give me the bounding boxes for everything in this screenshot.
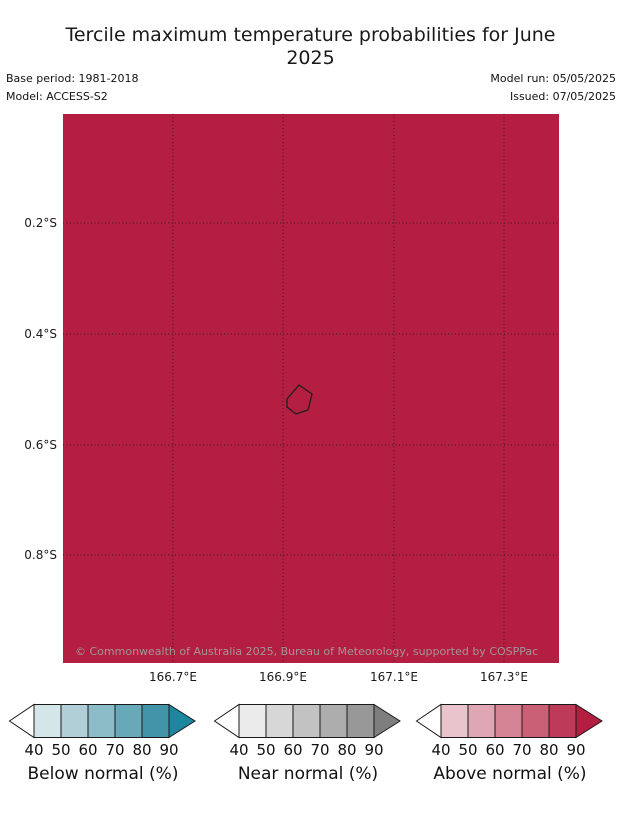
- over-arrow: [169, 705, 195, 738]
- tick-90: 90: [154, 741, 184, 759]
- colorbar-above-normal-bar: [415, 703, 605, 739]
- tick-90: 90: [561, 741, 591, 759]
- x-tick-label: 166.7°E: [149, 670, 197, 684]
- issued-text: Issued: 07/05/2025: [490, 88, 616, 106]
- segment-80-90: [347, 705, 374, 738]
- tick-50: 50: [453, 741, 483, 759]
- tick-70: 70: [507, 741, 537, 759]
- segment-50-60: [61, 705, 88, 738]
- tick-60: 60: [480, 741, 510, 759]
- model-text: Model: ACCESS-S2: [6, 88, 138, 106]
- segment-60-70: [495, 705, 522, 738]
- copyright-text: © Commonwealth of Australia 2025, Bureau…: [75, 645, 538, 658]
- segment-70-80: [115, 705, 142, 738]
- segment-70-80: [522, 705, 549, 738]
- over-arrow: [374, 705, 400, 738]
- y-tick-label: 0.4°S: [0, 327, 57, 341]
- colorbar-below-normal-bar: [8, 703, 198, 739]
- under-arrow: [417, 705, 442, 738]
- segment-50-60: [266, 705, 293, 738]
- colorbar-label: Below normal (%): [8, 764, 198, 784]
- colorbar-near-normal-bar: [213, 703, 403, 739]
- segment-40-50: [441, 705, 468, 738]
- segment-80-90: [549, 705, 576, 738]
- segment-60-70: [88, 705, 115, 738]
- colorbar-label: Near normal (%): [213, 764, 403, 784]
- colorbar-above-normal: 40 50 60 70 80 90 Above normal (%): [415, 703, 605, 784]
- under-arrow: [10, 705, 35, 738]
- meta-left: Base period: 1981-2018 Model: ACCESS-S2: [6, 70, 138, 106]
- model-run-text: Model run: 05/05/2025: [490, 70, 616, 88]
- tick-90: 90: [359, 741, 389, 759]
- y-tick-label: 0.8°S: [0, 548, 57, 562]
- segment-80-90: [142, 705, 169, 738]
- tick-40: 40: [426, 741, 456, 759]
- colorbar-below-normal: 40 50 60 70 80 90 Below normal (%): [8, 703, 198, 784]
- meta-right: Model run: 05/05/2025 Issued: 07/05/2025: [490, 70, 616, 106]
- tick-70: 70: [100, 741, 130, 759]
- base-period-text: Base period: 1981-2018: [6, 70, 138, 88]
- segment-40-50: [239, 705, 266, 738]
- tick-60: 60: [73, 741, 103, 759]
- over-arrow: [576, 705, 602, 738]
- tick-70: 70: [305, 741, 335, 759]
- colorbar-near-normal: 40 50 60 70 80 90 Near normal (%): [213, 703, 403, 784]
- y-tick-label: 0.2°S: [0, 216, 57, 230]
- colorbar-label: Above normal (%): [415, 764, 605, 784]
- figure: Tercile maximum temperature probabilitie…: [0, 0, 621, 839]
- segment-50-60: [468, 705, 495, 738]
- map-panel: © Commonwealth of Australia 2025, Bureau…: [63, 114, 559, 663]
- tick-40: 40: [19, 741, 49, 759]
- probability-field: [63, 114, 559, 663]
- tick-80: 80: [127, 741, 157, 759]
- colorbar-ticks: 40 50 60 70 80 90: [8, 741, 198, 759]
- tick-50: 50: [251, 741, 281, 759]
- tick-60: 60: [278, 741, 308, 759]
- tick-40: 40: [224, 741, 254, 759]
- colorbar-ticks: 40 50 60 70 80 90: [415, 741, 605, 759]
- segment-40-50: [34, 705, 61, 738]
- tick-50: 50: [46, 741, 76, 759]
- colorbar-ticks: 40 50 60 70 80 90: [213, 741, 403, 759]
- map-canvas: [63, 114, 559, 663]
- x-tick-label: 167.1°E: [370, 670, 418, 684]
- figure-title: Tercile maximum temperature probabilitie…: [61, 24, 561, 70]
- segment-70-80: [320, 705, 347, 738]
- y-tick-label: 0.6°S: [0, 438, 57, 452]
- segment-60-70: [293, 705, 320, 738]
- x-tick-label: 166.9°E: [259, 670, 307, 684]
- tick-80: 80: [332, 741, 362, 759]
- tick-80: 80: [534, 741, 564, 759]
- x-tick-label: 167.3°E: [480, 670, 528, 684]
- under-arrow: [215, 705, 240, 738]
